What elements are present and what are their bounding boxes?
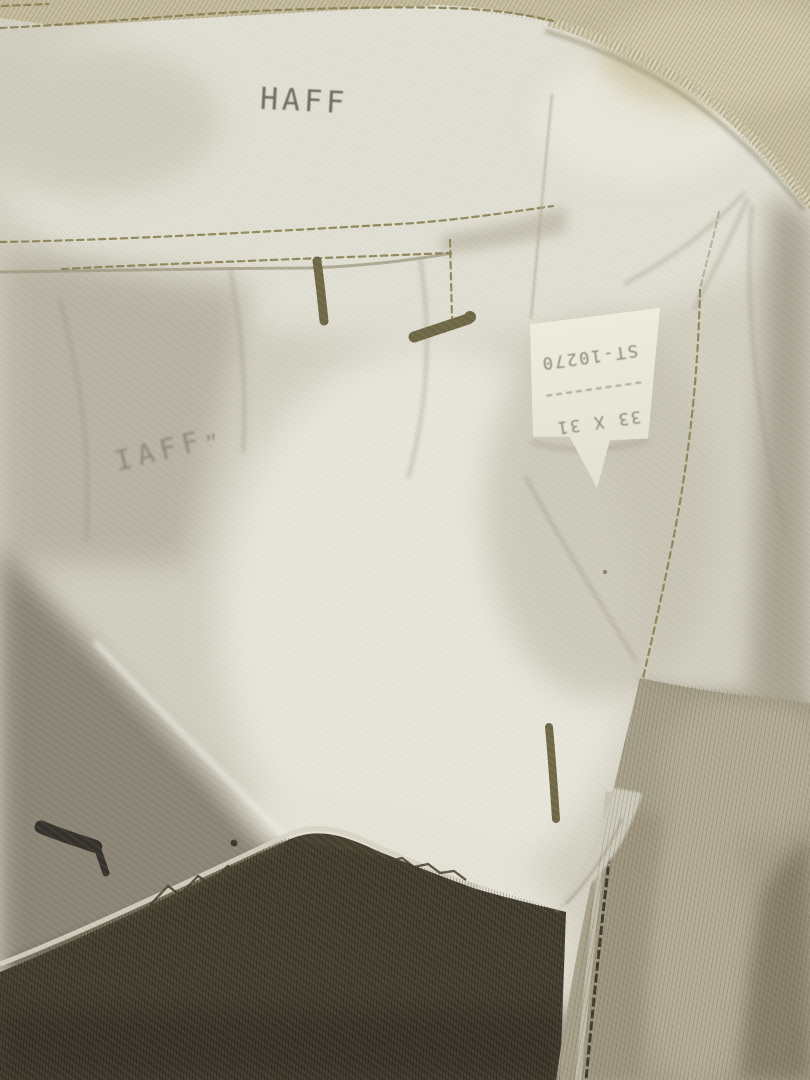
dark-shell-shadow: [0, 1010, 560, 1080]
label-stock-number-text: ST-10270: [539, 340, 639, 373]
name-stamp: HAFF: [259, 82, 349, 122]
label-size-text: 33 X 31: [555, 406, 643, 438]
trousers-interior-photo: HAFF IAFF ” 33 X 31 ST-10270: [0, 0, 810, 1080]
bar-tack-knot: [464, 311, 476, 323]
fabric-render: [0, 0, 810, 1080]
label-dashed-divider: [546, 381, 641, 396]
thread-speck: [231, 840, 238, 847]
thread-speck: [603, 570, 607, 574]
